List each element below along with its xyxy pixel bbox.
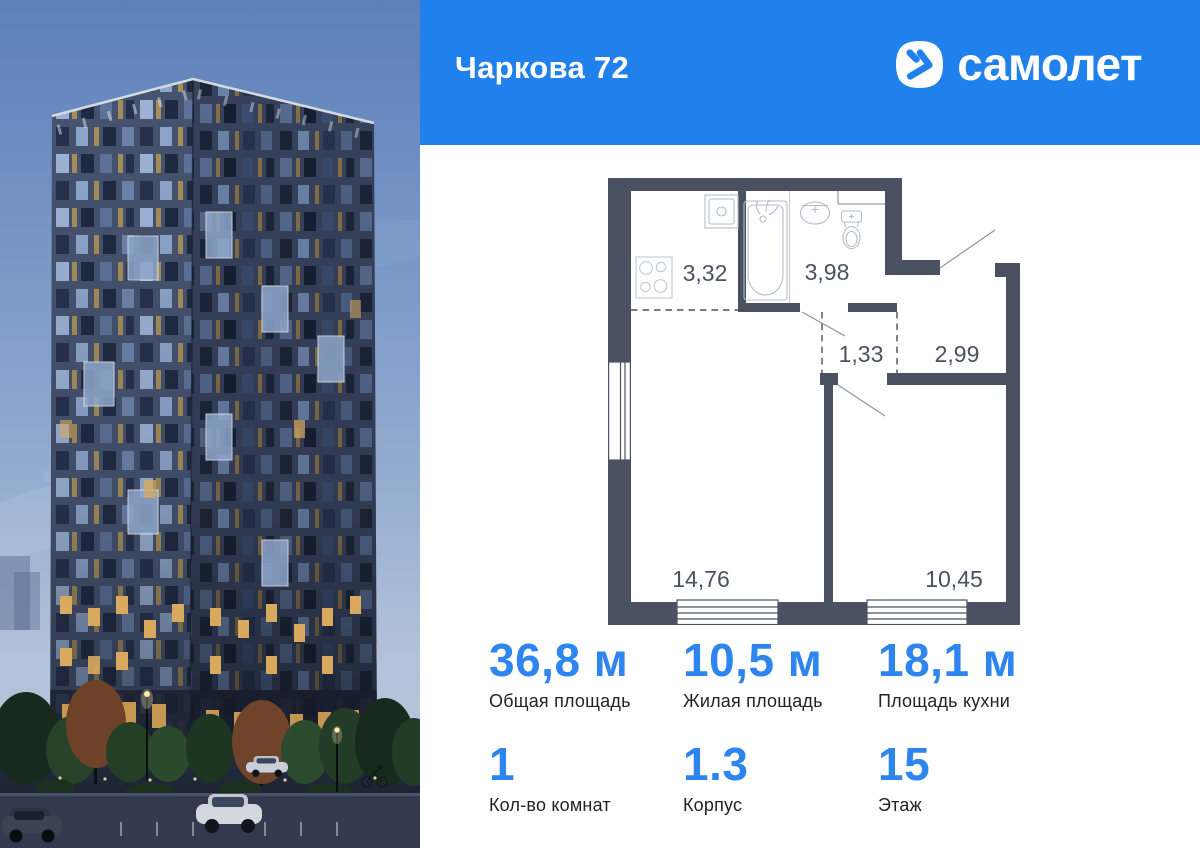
stat-floor-number: 15 Этаж xyxy=(878,741,1068,816)
building-photo xyxy=(0,0,420,848)
room-area-living-room: 14,76 xyxy=(672,566,730,592)
samolet-logo: самолет xyxy=(895,40,1142,89)
stat-room-count: 1 Кол-во комнат xyxy=(489,741,679,816)
duct-niche xyxy=(838,191,885,204)
stat-living-area-label: Жилая площадь xyxy=(683,691,873,712)
stat-floor-number-value: 15 xyxy=(878,741,1068,787)
stat-total-area-label: Общая площадь xyxy=(489,691,679,712)
plan-walls xyxy=(608,178,1020,625)
kitchen-sink-icon xyxy=(705,195,738,228)
stat-living-area: 10,5 м Жилая площадь xyxy=(683,637,873,712)
stat-floor-number-label: Этаж xyxy=(878,795,1068,816)
room-area-bathroom: 3,98 xyxy=(805,259,850,285)
stat-total-area: 36,8 м Общая площадь xyxy=(489,637,679,712)
room-area-hallway: 1,33 xyxy=(839,341,884,367)
toilet-icon xyxy=(842,211,862,249)
samolet-logo-text: самолет xyxy=(957,40,1142,89)
stat-room-count-value: 1 xyxy=(489,741,679,787)
stat-building-number: 1.3 Корпус xyxy=(683,741,873,816)
header: Чаркова 72 самолет xyxy=(420,0,1200,145)
samolet-logo-icon xyxy=(895,40,944,89)
washbasin-icon xyxy=(801,202,830,224)
stat-room-count-label: Кол-во комнат xyxy=(489,795,679,816)
floor-plan: 3,32 3,98 1,33 2,99 14,76 10,45 xyxy=(608,178,1020,625)
stat-building-number-label: Корпус xyxy=(683,795,873,816)
project-title: Чаркова 72 xyxy=(455,50,629,86)
room-area-hall: 2,99 xyxy=(935,341,980,367)
stat-total-area-value: 36,8 м xyxy=(489,637,679,683)
stat-kitchen-area-label: Площадь кухни xyxy=(878,691,1068,712)
stove-icon xyxy=(636,257,672,298)
plan-windows xyxy=(609,362,967,625)
bathtub-icon xyxy=(744,200,787,300)
stat-building-number-value: 1.3 xyxy=(683,741,873,787)
stat-kitchen-area-value: 18,1 м xyxy=(878,637,1068,683)
apartment-card: Чаркова 72 самолет xyxy=(0,0,1200,848)
stat-living-area-value: 10,5 м xyxy=(683,637,873,683)
room-area-bedroom: 10,45 xyxy=(925,566,983,592)
stat-kitchen-area: 18,1 м Площадь кухни xyxy=(878,637,1068,712)
room-area-kitchen: 3,32 xyxy=(683,260,728,286)
